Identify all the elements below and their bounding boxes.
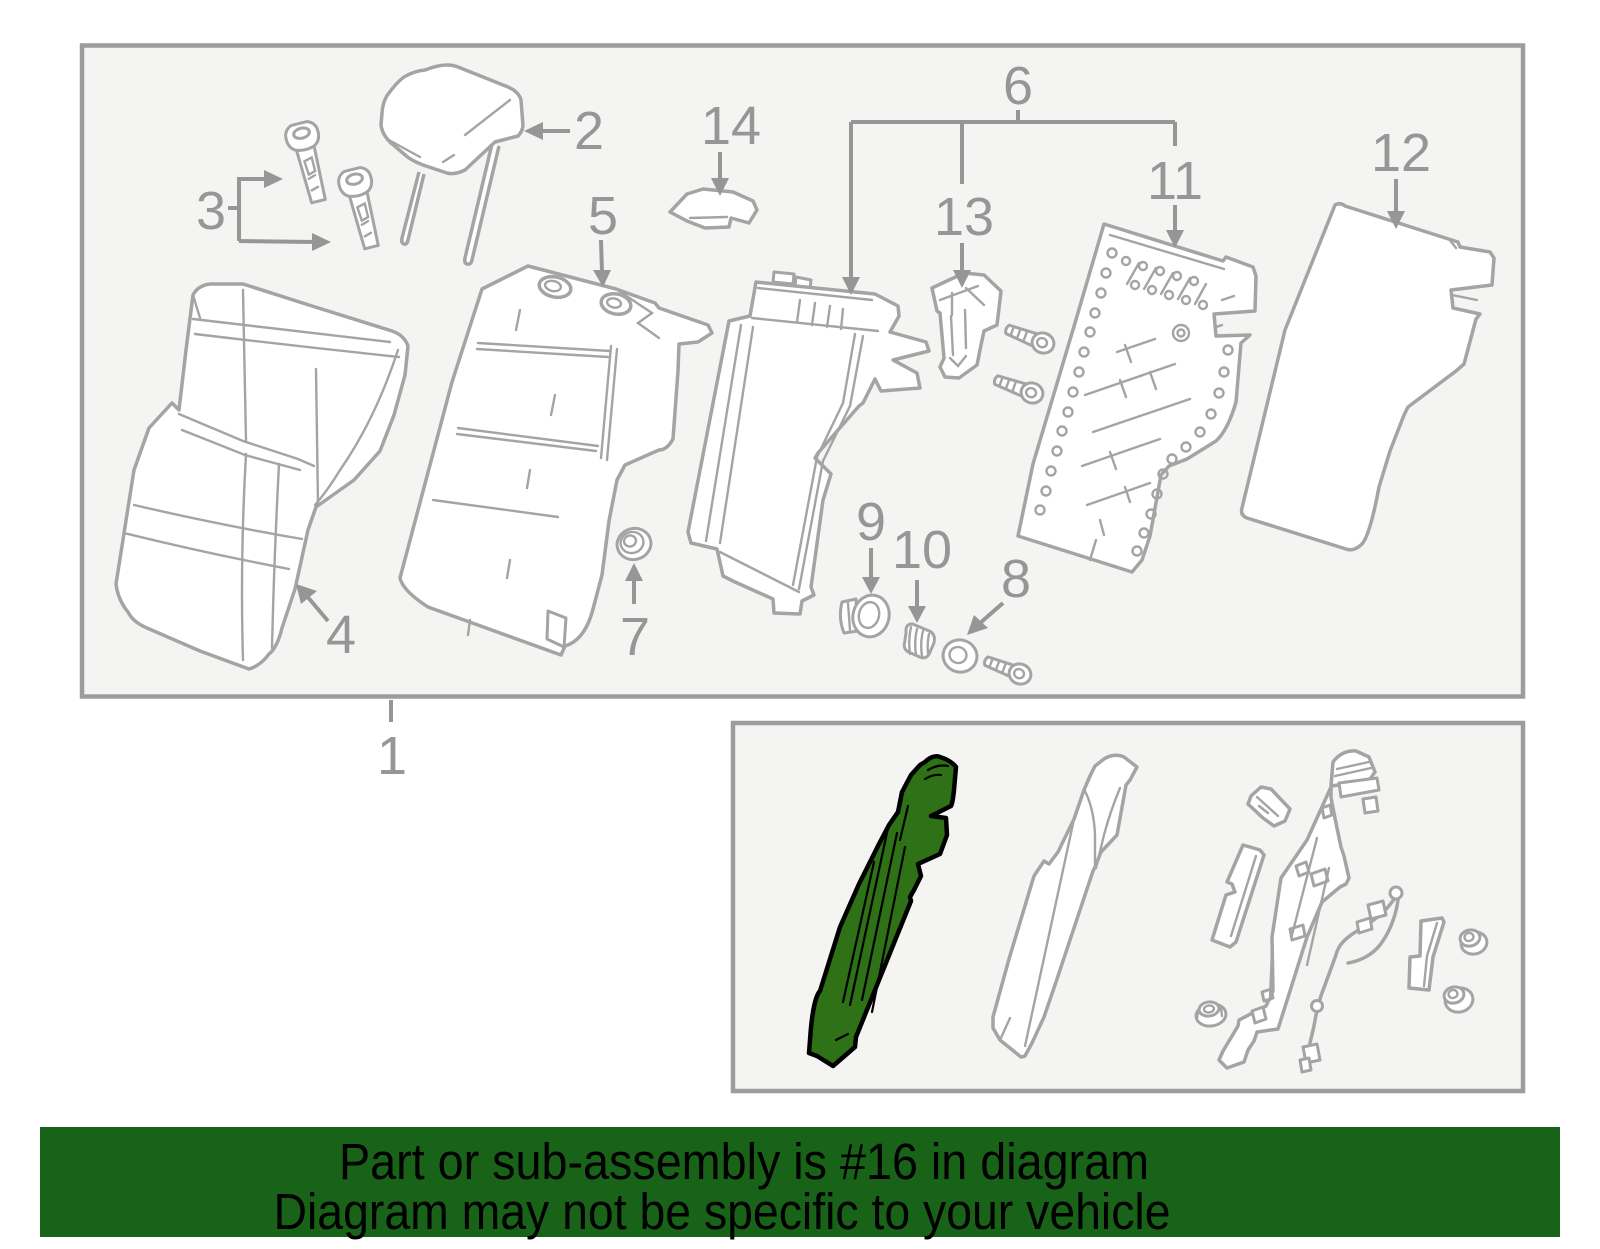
svg-text:6: 6 — [1003, 56, 1033, 116]
svg-text:4: 4 — [326, 605, 356, 665]
svg-text:9: 9 — [856, 492, 886, 552]
svg-text:5: 5 — [588, 186, 618, 246]
svg-text:13: 13 — [934, 187, 994, 247]
svg-text:14: 14 — [701, 96, 761, 156]
svg-text:Part or sub-assembly is #16 in: Part or sub-assembly is #16 in diagram — [339, 1133, 1149, 1190]
svg-text:Diagram may not be specific to: Diagram may not be specific to your vehi… — [274, 1183, 1171, 1240]
svg-text:11: 11 — [1147, 151, 1203, 211]
svg-text:7: 7 — [620, 607, 650, 667]
svg-text:3: 3 — [196, 181, 226, 241]
svg-text:8: 8 — [1001, 549, 1031, 609]
svg-text:2: 2 — [574, 101, 604, 161]
svg-text:12: 12 — [1371, 123, 1431, 183]
svg-text:1: 1 — [377, 726, 407, 786]
svg-text:10: 10 — [892, 520, 952, 580]
